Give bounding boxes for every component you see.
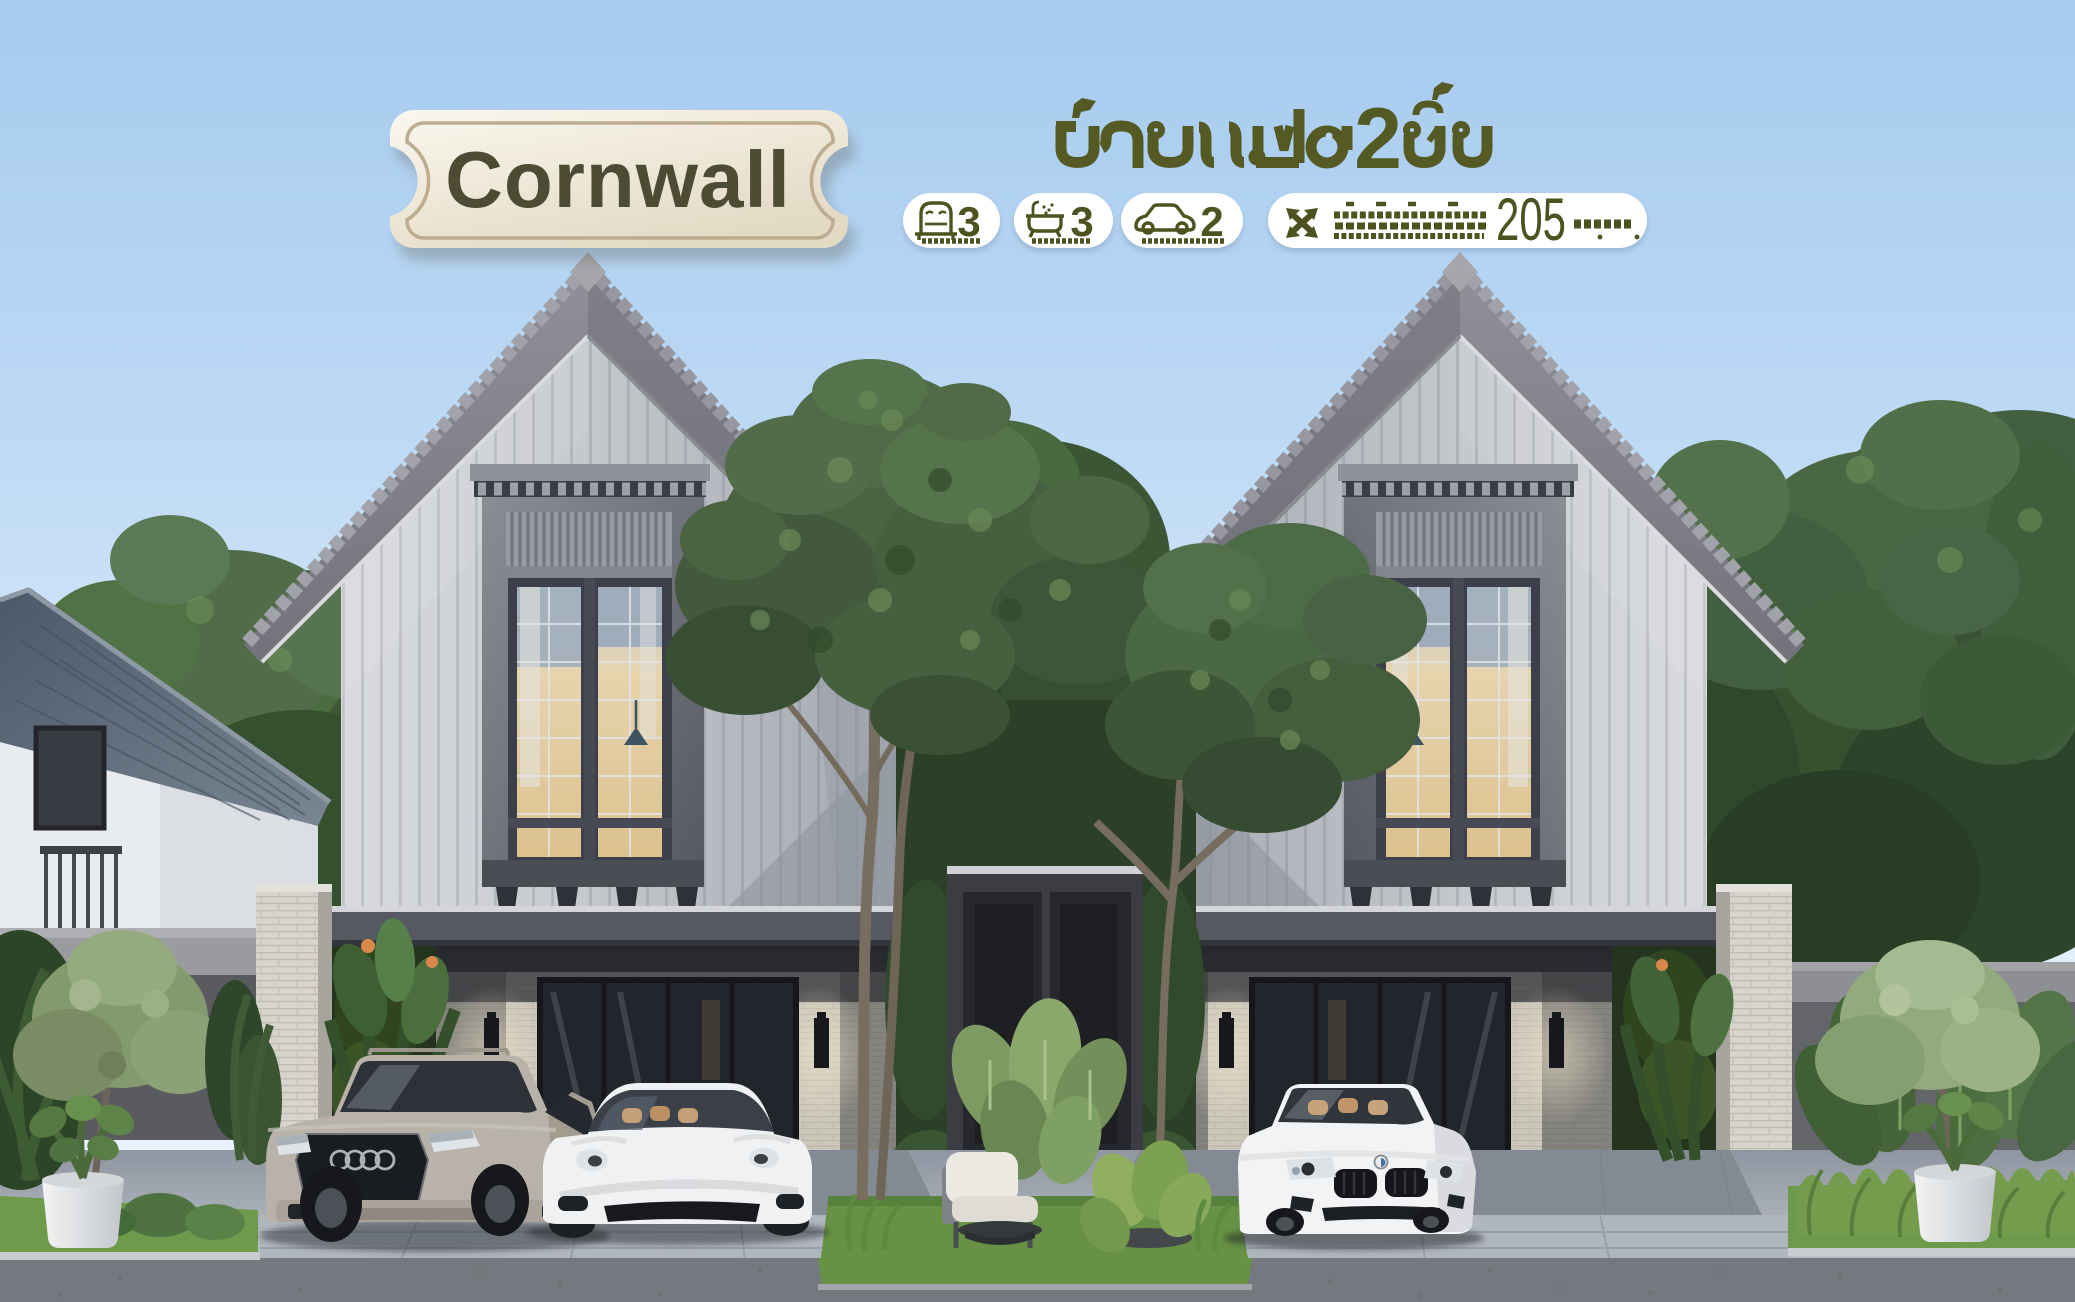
svg-text:3: 3: [1070, 198, 1093, 245]
svg-text:2: 2: [1200, 198, 1223, 245]
svg-text:205: 205: [1496, 186, 1566, 253]
svg-text:2: 2: [1354, 91, 1402, 187]
svg-text:3: 3: [957, 198, 980, 245]
svg-text:Cornwall: Cornwall: [445, 135, 791, 224]
